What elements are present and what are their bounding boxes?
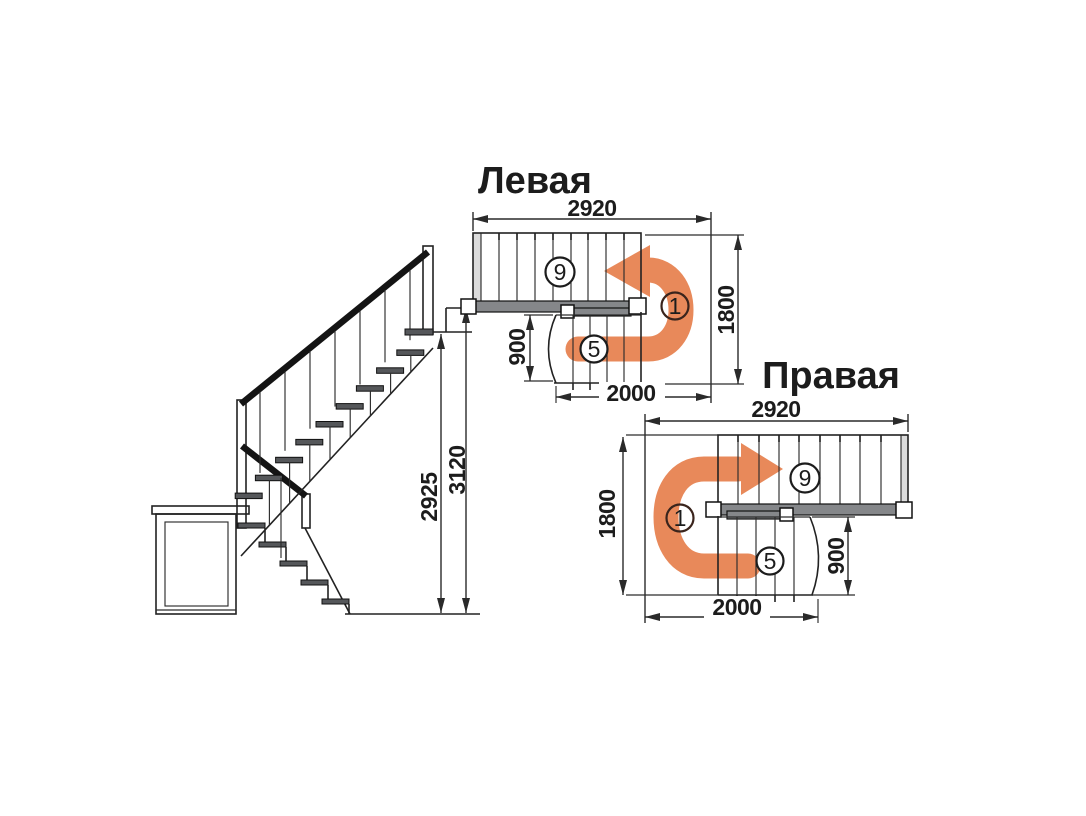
tread <box>377 368 404 374</box>
dimension-3120: 3120 <box>444 308 470 613</box>
step-count-upper-label: 9 <box>799 465 812 491</box>
start-step-label: 1 <box>674 505 687 531</box>
dimension-2925: 2925 <box>416 334 445 613</box>
tread <box>322 599 349 604</box>
dim-2920-left-label: 2920 <box>567 195 616 221</box>
tread <box>280 561 307 566</box>
plan-post-left <box>706 502 721 517</box>
flight9-edge-strip <box>473 233 481 303</box>
tread <box>356 386 383 392</box>
treads <box>235 350 424 525</box>
tread <box>276 457 303 463</box>
tread <box>238 523 265 528</box>
newel-post-middle <box>237 400 246 528</box>
plan-title-right: Правая <box>762 355 900 397</box>
plan-post-left <box>461 299 476 314</box>
dim-1800-right-label: 1800 <box>594 489 620 538</box>
tread <box>259 542 286 547</box>
lower-steps <box>238 523 349 614</box>
left-plan-view: Левая 2920 <box>461 160 744 406</box>
step-count-upper-label: 9 <box>554 259 567 285</box>
start-step-label: 1 <box>669 293 682 319</box>
tread <box>301 580 328 585</box>
u-turn-arrow-right-head <box>741 443 783 495</box>
dim-1800-left: 1800 <box>645 235 744 384</box>
handrail-lower <box>242 446 306 496</box>
flight9-edge-strip <box>901 435 908 505</box>
flight9-ticks <box>738 435 881 442</box>
dim-2920-right-label: 2920 <box>751 396 800 422</box>
plan-post-right <box>896 502 912 518</box>
top-floor-tread <box>405 329 433 335</box>
plan-post-mid <box>561 305 574 318</box>
dim-2000-right: 2000 <box>645 594 818 623</box>
dim-2925-label: 2925 <box>416 472 442 522</box>
stair-drawing: 2925 3120 Левая <box>0 0 1086 816</box>
winder-curve <box>549 315 557 383</box>
stair-diagram-canvas: 2925 3120 Левая <box>0 0 1086 816</box>
newel-post-top <box>423 246 433 334</box>
tread <box>316 422 343 428</box>
u-turn-arrow-left-head <box>604 245 650 297</box>
step-count-lower-label: 5 <box>588 336 601 362</box>
tread <box>255 475 282 481</box>
tread <box>235 493 262 499</box>
plan-post-mid <box>780 508 793 521</box>
tread <box>336 404 363 410</box>
winder-curve <box>810 517 819 595</box>
dim-900-left: 900 <box>504 315 553 381</box>
dim-3120-label: 3120 <box>444 445 470 494</box>
tread <box>296 439 323 445</box>
dim-1800-left-label: 1800 <box>713 285 739 334</box>
dim-2000-left-label: 2000 <box>606 380 655 406</box>
step-count-lower-label: 5 <box>764 548 777 574</box>
tread <box>397 350 424 356</box>
landing-box <box>152 506 249 614</box>
plan-post-right <box>629 298 646 314</box>
flight9-ticks <box>499 233 624 240</box>
dim-900-right-label: 900 <box>823 538 849 575</box>
dim-2000-right-label: 2000 <box>712 594 761 620</box>
dim-900-left-label: 900 <box>504 329 530 366</box>
newel-post-lower <box>302 494 310 528</box>
elevation-view: 2925 3120 <box>152 246 480 614</box>
